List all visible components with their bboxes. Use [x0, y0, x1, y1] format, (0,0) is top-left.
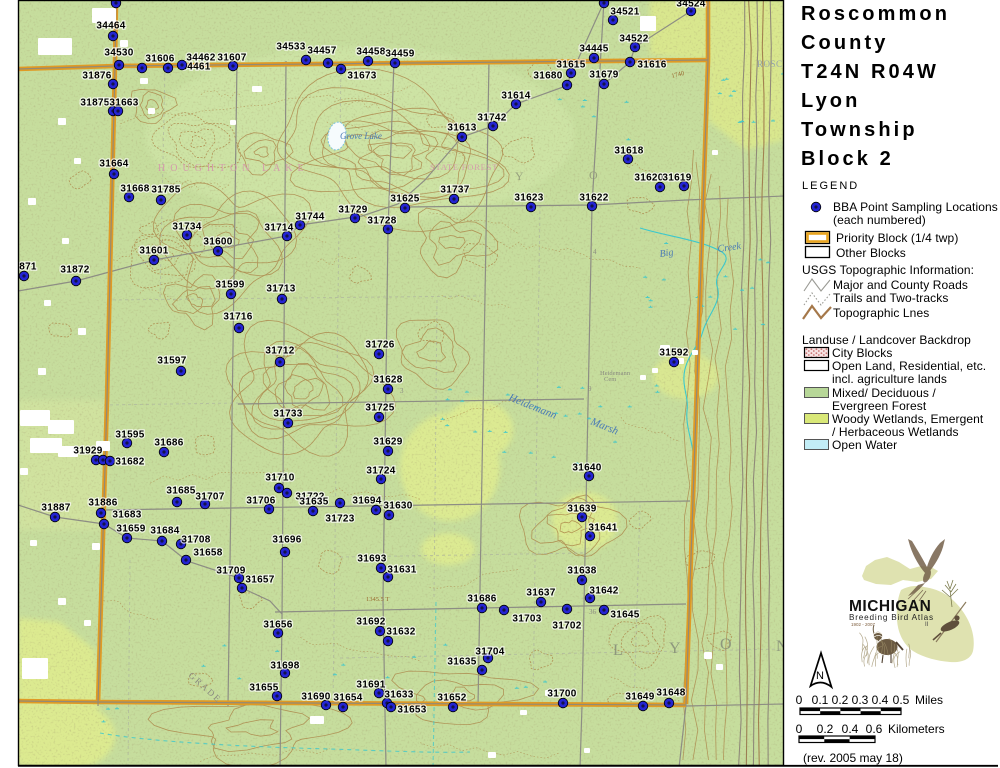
svg-text:34521: 34521	[610, 7, 639, 18]
svg-text:4: 4	[593, 248, 597, 256]
svg-text:31645: 31645	[610, 610, 639, 621]
svg-text:O: O	[589, 168, 598, 182]
svg-text:34464: 34464	[96, 21, 125, 32]
svg-text:L: L	[613, 642, 623, 659]
svg-text:31716: 31716	[223, 312, 252, 323]
svg-text:31633: 31633	[384, 690, 413, 701]
svg-text:31887: 31887	[41, 503, 70, 514]
svg-text:31652: 31652	[437, 693, 466, 704]
svg-text:31712: 31712	[265, 346, 294, 357]
svg-text:31635: 31635	[299, 497, 328, 508]
svg-text:0.4: 0.4	[842, 722, 859, 736]
svg-text:0.1: 0.1	[812, 693, 829, 707]
svg-text:3: 3	[400, 387, 404, 395]
svg-text:34457: 34457	[307, 46, 336, 57]
svg-text:31742: 31742	[477, 113, 506, 124]
svg-text:31615: 31615	[556, 60, 585, 71]
svg-text:31637: 31637	[526, 588, 555, 599]
svg-text:34445: 34445	[579, 44, 608, 55]
svg-text:31655: 31655	[249, 683, 278, 694]
svg-text:N: N	[816, 670, 824, 682]
svg-text:31706: 31706	[246, 496, 275, 507]
svg-text:0: 0	[796, 693, 803, 707]
svg-text:31700: 31700	[547, 689, 576, 700]
svg-text:31707: 31707	[195, 492, 224, 503]
svg-text:34458: 34458	[356, 47, 385, 58]
svg-text:34533: 34533	[276, 42, 305, 53]
svg-text:0.2: 0.2	[832, 693, 849, 707]
svg-text:HOUGHTON LAKE: HOUGHTON LAKE	[158, 163, 309, 174]
svg-text:31600: 31600	[203, 237, 232, 248]
svg-text:STATE FOREST: STATE FOREST	[430, 162, 498, 172]
svg-text:Big: Big	[659, 247, 674, 260]
svg-text:31679: 31679	[589, 70, 618, 81]
svg-text:31640: 31640	[572, 463, 601, 474]
svg-text:31618: 31618	[614, 146, 643, 157]
svg-text:31704: 31704	[475, 647, 504, 658]
svg-text:II: II	[925, 622, 929, 628]
svg-text:(rev. 2005 may 18): (rev. 2005 may 18)	[803, 751, 903, 765]
svg-text:31785: 31785	[151, 185, 180, 196]
svg-text:31653: 31653	[397, 705, 426, 716]
svg-text:34524: 34524	[676, 0, 705, 10]
svg-text:31607: 31607	[217, 53, 246, 64]
svg-text:Cem: Cem	[604, 376, 616, 383]
svg-text:31693: 31693	[357, 554, 386, 565]
svg-text:31601: 31601	[139, 246, 168, 257]
svg-text:36: 36	[589, 608, 597, 616]
svg-text:0.2: 0.2	[817, 722, 834, 736]
svg-text:31685: 31685	[166, 486, 195, 497]
svg-text:31628: 31628	[373, 375, 402, 386]
svg-text:ROSC: ROSC	[757, 59, 783, 69]
svg-text:31635: 31635	[447, 657, 476, 668]
svg-text:9: 9	[588, 385, 592, 393]
svg-text:31684: 31684	[150, 526, 179, 537]
svg-text:31703: 31703	[512, 614, 541, 625]
svg-text:31673: 31673	[347, 71, 376, 82]
svg-text:34459: 34459	[385, 49, 414, 60]
svg-text:0.4: 0.4	[872, 693, 889, 707]
svg-text:31694: 31694	[352, 496, 381, 507]
svg-text:31663: 31663	[109, 98, 138, 109]
svg-text:31733: 31733	[273, 409, 302, 420]
svg-text:31664: 31664	[99, 159, 128, 170]
svg-text:31876: 31876	[82, 71, 111, 82]
svg-text:31657: 31657	[245, 575, 274, 586]
svg-text:31656: 31656	[263, 620, 292, 631]
svg-text:O: O	[720, 636, 732, 653]
svg-text:31692: 31692	[356, 617, 385, 628]
svg-text:31597: 31597	[157, 356, 186, 367]
svg-text:31729: 31729	[338, 205, 367, 216]
svg-text:0.5: 0.5	[893, 693, 910, 707]
svg-text:0: 0	[796, 722, 803, 736]
svg-text:31649: 31649	[625, 692, 654, 703]
svg-text:31724: 31724	[366, 466, 395, 477]
svg-text:31714: 31714	[264, 223, 293, 234]
svg-text:31737: 31737	[440, 185, 469, 196]
svg-text:31625: 31625	[390, 194, 419, 205]
svg-text:Y: Y	[515, 169, 524, 183]
svg-text:31929: 31929	[73, 446, 102, 457]
svg-text:31622: 31622	[579, 193, 608, 204]
svg-text:31614: 31614	[501, 91, 530, 102]
svg-text:0.6: 0.6	[866, 722, 883, 736]
svg-text:31886: 31886	[88, 498, 117, 509]
svg-text:Kilometers: Kilometers	[888, 722, 945, 736]
svg-text:31690: 31690	[301, 692, 330, 703]
svg-text:31639: 31639	[567, 504, 596, 515]
svg-text:34522: 34522	[619, 34, 648, 45]
svg-text:31613: 31613	[447, 123, 476, 134]
svg-text:31680: 31680	[533, 71, 562, 82]
svg-text:31696: 31696	[272, 535, 301, 546]
svg-text:31648: 31648	[656, 688, 685, 699]
svg-text:31744: 31744	[295, 212, 324, 223]
svg-text:Miles: Miles	[915, 693, 943, 707]
svg-text:31659: 31659	[116, 524, 145, 535]
svg-text:871: 871	[19, 262, 37, 273]
svg-text:31734: 31734	[172, 222, 201, 233]
svg-text:31686: 31686	[467, 594, 496, 605]
svg-text:31725: 31725	[365, 403, 394, 414]
svg-text:31691: 31691	[356, 680, 385, 691]
svg-text:31658: 31658	[193, 548, 222, 559]
svg-text:Grove Lake: Grove Lake	[340, 131, 382, 141]
svg-text:31641: 31641	[588, 523, 617, 534]
svg-text:31606: 31606	[145, 54, 174, 65]
svg-text:31595: 31595	[115, 430, 144, 441]
svg-text:31728: 31728	[367, 216, 396, 227]
svg-text:31616: 31616	[637, 60, 666, 71]
svg-text:31708: 31708	[181, 535, 210, 546]
svg-text:31632: 31632	[386, 627, 415, 638]
svg-text:31654: 31654	[333, 693, 362, 704]
svg-text:31620: 31620	[634, 173, 663, 184]
svg-text:31638: 31638	[567, 566, 596, 577]
svg-text:31723: 31723	[325, 514, 354, 525]
svg-text:1902 - 2007: 1902 - 2007	[851, 622, 876, 627]
svg-text:Breeding Bird Atlas: Breeding Bird Atlas	[849, 613, 934, 622]
svg-text:31726: 31726	[365, 340, 394, 351]
svg-text:31702: 31702	[552, 621, 581, 632]
svg-text:31619: 31619	[662, 173, 691, 184]
svg-text:31872: 31872	[60, 265, 89, 276]
svg-text:34530: 34530	[104, 48, 133, 59]
svg-text:31698: 31698	[270, 661, 299, 672]
svg-text:31668: 31668	[120, 184, 149, 195]
svg-text:31642: 31642	[589, 586, 618, 597]
svg-text:31683: 31683	[112, 510, 141, 521]
svg-text:Y: Y	[669, 640, 681, 657]
svg-text:31709: 31709	[216, 566, 245, 577]
svg-text:31682: 31682	[115, 457, 144, 468]
svg-text:31713: 31713	[266, 284, 295, 295]
svg-text:31630: 31630	[383, 501, 412, 512]
svg-text:31875: 31875	[80, 98, 109, 109]
svg-text:31710: 31710	[265, 473, 294, 484]
svg-text:0.3: 0.3	[852, 693, 869, 707]
svg-text:31631: 31631	[387, 565, 416, 576]
svg-text:31599: 31599	[215, 280, 244, 291]
svg-text:31623: 31623	[514, 193, 543, 204]
svg-text:31629: 31629	[373, 437, 402, 448]
svg-text:31686: 31686	[154, 438, 183, 449]
svg-text:34462: 34462	[186, 53, 215, 64]
svg-text:1345.5 T: 1345.5 T	[366, 596, 389, 603]
svg-text:31592: 31592	[659, 348, 688, 359]
svg-text:N: N	[776, 638, 788, 655]
